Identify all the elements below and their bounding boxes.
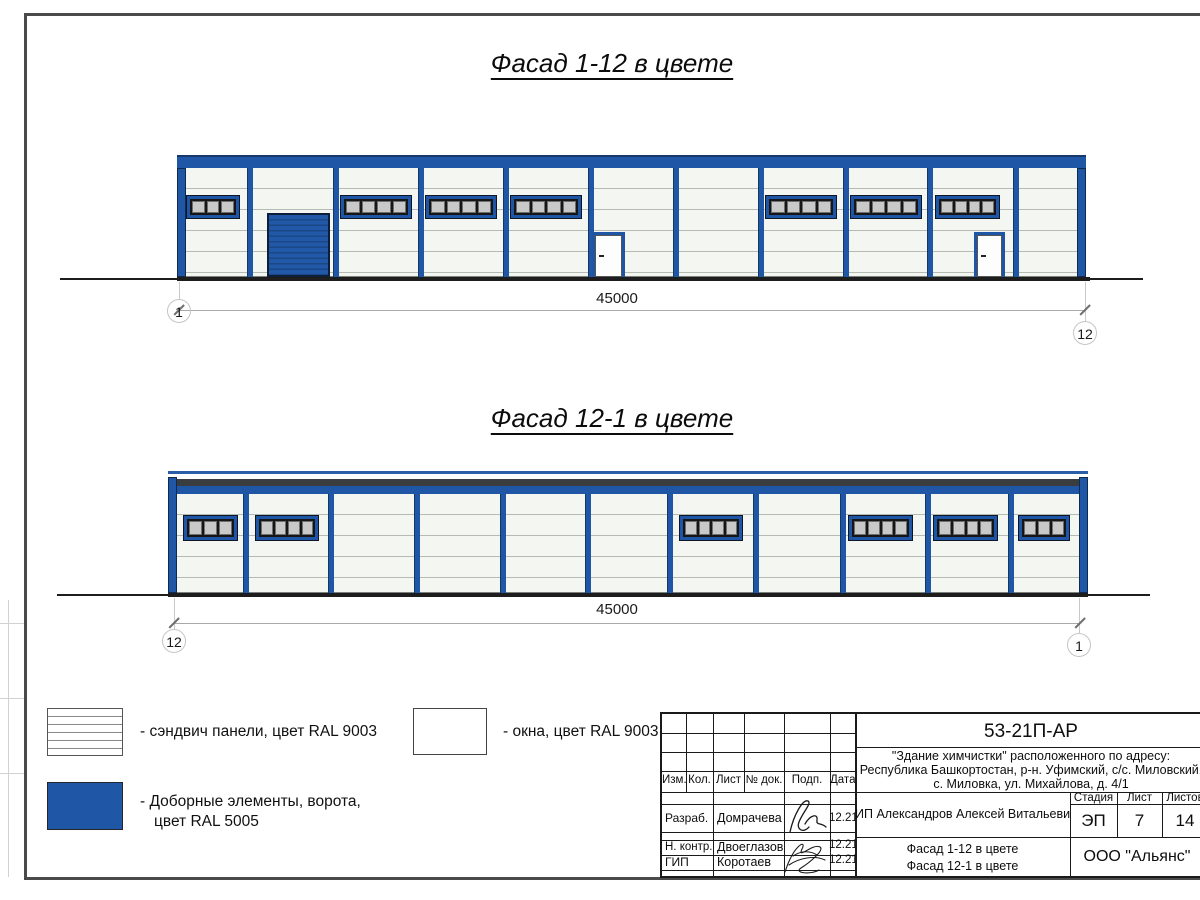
- axis-marker-12: 12: [1073, 321, 1097, 345]
- facade2-title: Фасад 12-1 в цвете: [24, 403, 1200, 434]
- signature-developer: [784, 796, 830, 836]
- tb-grid-line: [662, 771, 855, 772]
- tb-grid-line: [662, 733, 855, 734]
- ground-line: [168, 593, 1088, 598]
- column: [414, 494, 420, 593]
- window: [340, 195, 412, 219]
- tb-col-list: Лист: [713, 774, 744, 786]
- tb-role-developer: Разраб.: [665, 804, 713, 832]
- window-panes: [514, 199, 578, 215]
- column: [753, 494, 759, 593]
- extension-line: [1079, 598, 1080, 633]
- facade1-title: Фасад 1-12 в цвете: [24, 48, 1200, 79]
- tb-sheet-title-line2: Фасад 12-1 в цвете: [855, 859, 1070, 873]
- ground-line: [57, 594, 170, 596]
- tb-address-line3: с. Миловка, ул. Михайлова, д. 4/1: [855, 777, 1200, 791]
- column: [503, 168, 509, 277]
- tb-address-line2: Республика Башкортостан, р-н. Уфимский, …: [855, 763, 1200, 777]
- window: [255, 515, 319, 541]
- tb-date-ncontrol: 12.21: [829, 838, 855, 852]
- frame-left: [24, 13, 27, 879]
- column: [927, 168, 933, 277]
- tb-col-podp: Подп.: [784, 774, 830, 786]
- tb-name-ncontrol: Двоеглазов: [717, 840, 783, 855]
- axis-marker-12: 12: [162, 629, 186, 653]
- tb-grid-line: [713, 714, 714, 876]
- window: [765, 195, 837, 219]
- margin-strip-divider: [0, 773, 24, 774]
- column: [328, 494, 334, 593]
- axis-marker-1: 1: [1067, 633, 1091, 657]
- column: [500, 494, 506, 593]
- window-panes: [259, 519, 315, 537]
- extension-line: [179, 282, 180, 300]
- tb-stage-value: ЭП: [1070, 804, 1117, 837]
- window-panes: [1022, 519, 1066, 537]
- window-panes: [939, 199, 996, 215]
- frame-top: [24, 13, 1200, 16]
- tb-col-data: Дата: [830, 774, 855, 786]
- window: [183, 515, 238, 541]
- window-panes: [852, 519, 909, 537]
- margin-strip-divider: [0, 698, 24, 699]
- gate: [267, 213, 330, 277]
- axis-marker-1: 1: [167, 299, 191, 323]
- tb-col-izm: Изм.: [662, 774, 686, 786]
- legend-label-windows: - окна, цвет RAL 9003: [503, 722, 658, 742]
- facade-12-1-drawing: [168, 471, 1088, 593]
- title-block: 53-21П-АР "Здание химчистки" расположенн…: [660, 712, 1200, 878]
- tb-name-gip: Коротаев: [717, 855, 783, 870]
- window-panes: [769, 199, 833, 215]
- column: [667, 494, 673, 593]
- window: [850, 195, 922, 219]
- column: [1008, 494, 1014, 593]
- extension-line: [1085, 282, 1086, 321]
- tb-name-developer: Домрачева: [717, 804, 783, 832]
- tb-grid-line: [662, 752, 855, 753]
- facade-1-12-drawing: [177, 155, 1086, 277]
- column: [243, 494, 249, 593]
- column: [925, 494, 931, 593]
- roof-band: [168, 479, 1088, 486]
- dimension-value: 45000: [596, 601, 638, 618]
- window-panes: [190, 199, 236, 215]
- legend-swatch-windows: [413, 708, 487, 755]
- tb-company: ООО "Альянс": [1070, 837, 1200, 876]
- door-leaf: [977, 235, 1002, 277]
- column: [673, 168, 679, 277]
- tb-role-ncontrol: Н. контр.: [665, 840, 713, 855]
- tb-date-gip: 12.21: [829, 853, 855, 867]
- window-panes: [937, 519, 994, 537]
- window: [186, 195, 240, 219]
- tb-date-developer: 12.21: [829, 804, 855, 832]
- corner-column: [1077, 168, 1086, 277]
- column: [247, 168, 253, 277]
- door-leaf: [595, 235, 622, 277]
- dimension-line: [179, 310, 1085, 311]
- tb-address-line1: "Здание химчистки" расположенного по адр…: [855, 749, 1200, 763]
- column: [1013, 168, 1019, 277]
- column: [843, 168, 849, 277]
- tb-sheet-label: Лист: [1117, 792, 1162, 804]
- extension-line: [174, 598, 175, 629]
- window-panes: [683, 519, 739, 537]
- tb-sheets-total: 14: [1162, 804, 1200, 837]
- margin-strip-divider: [0, 623, 24, 624]
- tb-doc-number: 53-21П-АР: [855, 716, 1200, 747]
- legend-label-blue-elements: - Доборные элементы, ворота, цвет RAL 50…: [140, 792, 361, 832]
- legend-swatch-blue-elements: [47, 782, 123, 830]
- window-panes: [429, 199, 493, 215]
- margin-strip-line: [8, 600, 9, 877]
- window: [510, 195, 582, 219]
- tb-stage-label: Стадия: [1070, 792, 1117, 804]
- signature-ncontrol-gip: [780, 834, 830, 878]
- window: [933, 515, 998, 541]
- tb-sheets-label: Листов: [1162, 792, 1200, 804]
- window: [425, 195, 497, 219]
- door: [592, 232, 625, 277]
- roof-band: [168, 486, 1088, 494]
- ground-line: [177, 277, 1090, 282]
- column: [758, 168, 764, 277]
- window-panes: [344, 199, 408, 215]
- tb-sheet-number: 7: [1117, 804, 1162, 837]
- window: [935, 195, 1000, 219]
- window: [679, 515, 743, 541]
- window-panes: [854, 199, 918, 215]
- dimension-value: 45000: [596, 290, 638, 307]
- window: [848, 515, 913, 541]
- tb-col-doc: № док.: [744, 774, 784, 786]
- legend-label-sandwich-panels: - сэндвич панели, цвет RAL 9003: [140, 722, 377, 742]
- ground-line: [1090, 278, 1143, 280]
- column: [840, 494, 846, 593]
- tb-grid-line: [855, 747, 1200, 748]
- column: [418, 168, 424, 277]
- ground-line: [60, 278, 180, 280]
- corner-column: [177, 168, 186, 277]
- wall-panels: [168, 494, 1088, 593]
- roof-band: [177, 157, 1086, 168]
- drawing-sheet: Фасад 1-12 в цвете Фасад 12-1 в цвете 45…: [0, 0, 1200, 900]
- corner-column: [168, 477, 177, 593]
- tb-sheet-title-line1: Фасад 1-12 в цвете: [855, 842, 1070, 856]
- window-panes: [187, 519, 234, 537]
- legend-swatch-sandwich-panels: [47, 708, 123, 756]
- tb-role-gip: ГИП: [665, 855, 713, 870]
- tb-client: ИП Александров Алексей Витальевич: [855, 792, 1070, 837]
- dimension-line: [174, 623, 1080, 624]
- column: [333, 168, 339, 277]
- ground-line: [1088, 594, 1150, 596]
- window: [1018, 515, 1070, 541]
- corner-column: [1079, 477, 1088, 593]
- roof-band: [168, 471, 1088, 474]
- tb-col-kol: Кол.: [686, 774, 713, 786]
- column: [585, 494, 591, 593]
- door: [974, 232, 1005, 277]
